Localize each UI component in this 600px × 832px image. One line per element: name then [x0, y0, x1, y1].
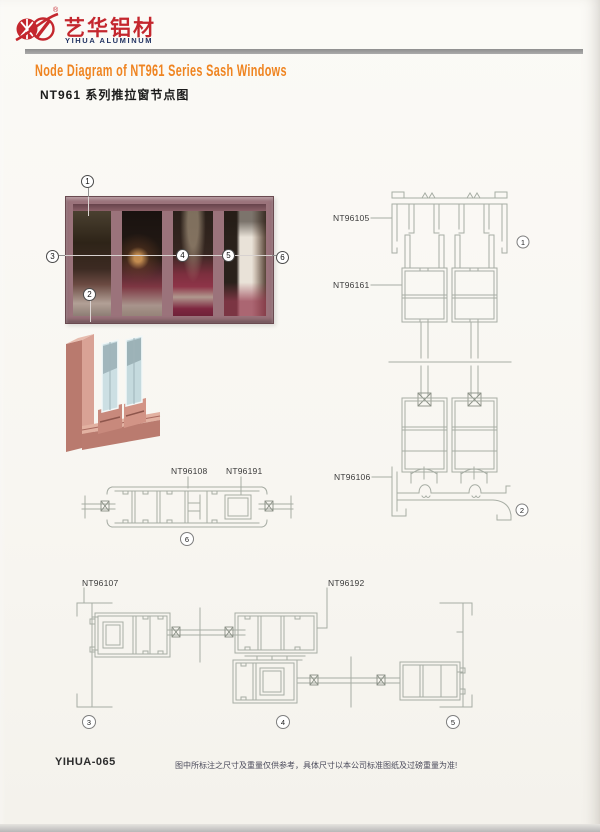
svg-text:5: 5	[451, 718, 455, 727]
svg-text:6: 6	[185, 535, 189, 544]
glass-pane-b	[297, 657, 400, 707]
interlock-assembly-profile	[107, 487, 267, 527]
footer-disclaimer: 图中所标注之尺寸及重量仅供参考，具体尺寸以本公司标准图纸及过磅重量为准!	[175, 760, 465, 771]
vertical-section-drawing: NT96105 NT96161 NT96106 1 2	[325, 175, 565, 535]
svg-text:3: 3	[87, 718, 91, 727]
page-code: YIHUA-065	[55, 756, 116, 768]
profile-corner-3d-render	[62, 330, 168, 452]
catalog-page: ® 艺华铝材 YIHUA ALUMINUM Node Diagram of NT…	[0, 0, 600, 832]
right-jamb-profile	[440, 603, 472, 707]
glass-pane-a	[167, 608, 245, 662]
photo-mullion	[162, 211, 173, 316]
sash-b-profile	[235, 613, 317, 653]
sash-d-profile	[400, 662, 465, 700]
plan-section-drawing: NT96107 NT96192 3 4 5	[55, 572, 545, 732]
glass-panes-upper	[389, 322, 511, 362]
brand-name-en: YIHUA ALUMINUM	[65, 36, 153, 45]
photo-top-track	[73, 204, 266, 211]
label-sash: NT96161	[333, 280, 369, 290]
sill-frame-profile	[392, 467, 511, 520]
callout-4-drawing: 4	[277, 716, 290, 729]
leader-line	[88, 188, 89, 216]
label-interlock: NT96108	[171, 466, 207, 476]
callout-3-drawing: 3	[83, 716, 96, 729]
label-sill-frame: NT96106	[334, 472, 370, 482]
glass-pane-left	[82, 496, 115, 518]
page-subtitle: NT961 系列推拉窗节点图	[40, 86, 189, 103]
callout-5-drawing: 5	[447, 716, 460, 729]
glass-pane-right	[259, 496, 293, 518]
photo-pane-4	[224, 211, 266, 316]
scan-edge	[0, 824, 600, 832]
callout-1-drawing: 1	[517, 236, 529, 248]
leader-line	[90, 300, 91, 322]
callout-2-drawing: 2	[516, 504, 528, 516]
glass-panes-lower-rollers	[418, 366, 481, 406]
label-glazing-profile: NT96191	[226, 466, 262, 476]
header-divider-bar	[25, 49, 583, 54]
photo-mullion	[111, 211, 122, 316]
sash-top-profiles	[402, 235, 497, 322]
leader-line	[59, 255, 277, 256]
yihua-logo-icon	[14, 9, 60, 49]
registered-mark: ®	[53, 7, 58, 14]
callout-4-photo: 4	[176, 249, 189, 262]
callout-6-photo: 6	[276, 251, 289, 264]
label-head-frame: NT96105	[333, 213, 369, 223]
photo-pane-3	[173, 211, 213, 316]
page-title: Node Diagram of NT961 Series Sash Window…	[35, 62, 287, 81]
sash-c-profile	[233, 660, 297, 703]
svg-text:4: 4	[281, 718, 285, 727]
leader-line	[371, 218, 402, 477]
sash-window-photo	[65, 196, 274, 324]
sash-a-profile	[90, 613, 170, 657]
callout-2-photo: 2	[83, 288, 96, 301]
callout-6-drawing: 6	[181, 533, 194, 546]
callout-1-photo: 1	[81, 175, 94, 188]
photo-mullion	[213, 211, 224, 316]
label-jamb-frame: NT96107	[82, 578, 118, 588]
callout-3-photo: 3	[46, 250, 59, 263]
meeting-overlap-profile	[245, 656, 305, 660]
svg-text:2: 2	[520, 506, 524, 515]
label-meeting-profile: NT96192	[328, 578, 364, 588]
head-frame-profile	[392, 192, 507, 253]
meeting-section-drawing: NT96108 NT96191 6	[55, 458, 305, 553]
sash-bottom-profiles	[402, 398, 497, 483]
svg-text:1: 1	[521, 238, 525, 247]
callout-5-photo: 5	[222, 249, 235, 262]
photo-pane-2	[122, 211, 162, 316]
